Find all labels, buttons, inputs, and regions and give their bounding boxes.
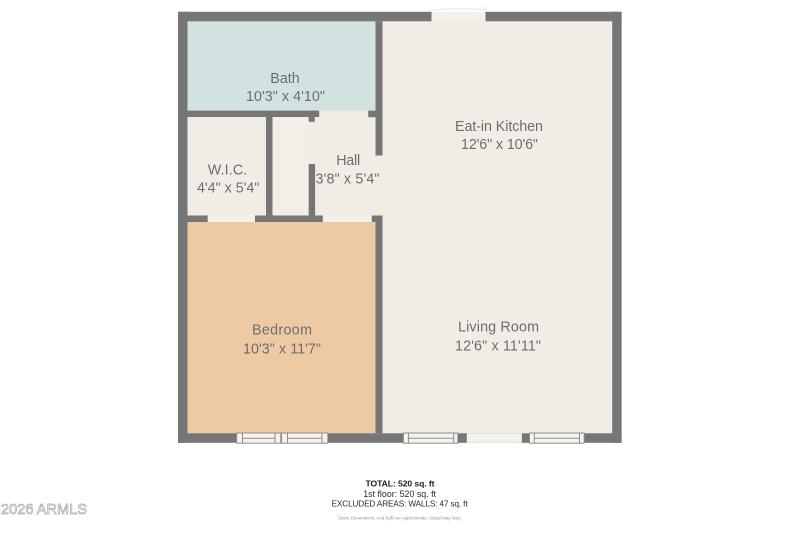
svg-text:Hall: Hall	[336, 153, 360, 169]
svg-text:12'6" x 11'11": 12'6" x 11'11"	[455, 338, 541, 354]
svg-text:2026 ARMLS: 2026 ARMLS	[1, 502, 87, 518]
svg-text:1st floor: 520 sq. ft: 1st floor: 520 sq. ft	[363, 489, 436, 499]
svg-text:10'3" x 11'7": 10'3" x 11'7"	[243, 341, 321, 357]
svg-text:Bedroom: Bedroom	[252, 323, 312, 339]
svg-text:Eat-in Kitchen: Eat-in Kitchen	[455, 119, 543, 135]
svg-text:W.I.C.: W.I.C.	[208, 163, 248, 179]
svg-text:3'8" x 5'4": 3'8" x 5'4"	[316, 171, 380, 187]
svg-text:Bath: Bath	[270, 71, 299, 87]
svg-text:10'3" x 4'10": 10'3" x 4'10"	[246, 89, 325, 105]
svg-text:12'6" x 10'6": 12'6" x 10'6"	[461, 137, 538, 153]
svg-text:Sizes, Dimensions, And Sqft Ar: Sizes, Dimensions, And Sqft Are Approxim…	[338, 515, 461, 521]
svg-text:TOTAL: 520 sq. ft: TOTAL: 520 sq. ft	[366, 478, 435, 488]
svg-text:Living Room: Living Room	[458, 319, 539, 335]
svg-text:4'4" x 5'4": 4'4" x 5'4"	[197, 181, 260, 197]
svg-text:EXCLUDED AREAS: WALLS: 47 sq.: EXCLUDED AREAS: WALLS: 47 sq. ft	[332, 500, 469, 509]
